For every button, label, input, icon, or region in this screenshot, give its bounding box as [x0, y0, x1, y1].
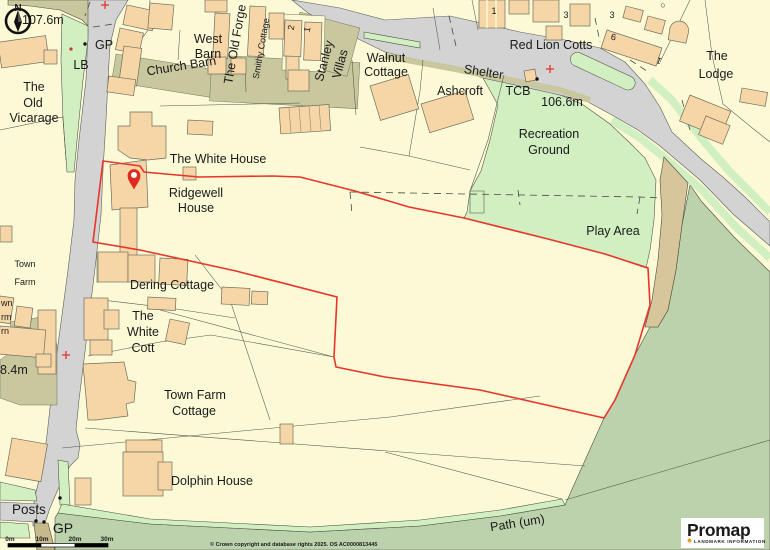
svg-text:Town Farm: Town Farm: [164, 388, 226, 402]
svg-text:N: N: [14, 3, 21, 14]
svg-text:TCB: TCB: [506, 84, 531, 98]
svg-text:3: 3: [609, 10, 614, 20]
svg-text:© Crown copyright and database: © Crown copyright and database rights 20…: [210, 541, 377, 548]
svg-text:Ridgewell: Ridgewell: [169, 186, 223, 200]
svg-text:Dolphin House: Dolphin House: [171, 474, 253, 488]
svg-text:30m: 30m: [100, 536, 113, 543]
svg-text:White: White: [127, 325, 159, 339]
svg-text:The White House: The White House: [170, 152, 267, 166]
svg-text:Dering Cottage: Dering Cottage: [130, 278, 214, 292]
svg-text:Lodge: Lodge: [699, 67, 734, 81]
svg-text:GP: GP: [53, 520, 73, 536]
svg-text:Posts: Posts: [12, 502, 46, 517]
svg-text:3: 3: [563, 10, 568, 20]
svg-text:106.6m: 106.6m: [541, 95, 583, 109]
svg-text:1: 1: [491, 6, 496, 16]
svg-text:The: The: [132, 309, 154, 323]
svg-text:House: House: [178, 201, 214, 215]
svg-text:Recreation: Recreation: [519, 127, 579, 141]
svg-text:Cottage: Cottage: [172, 404, 216, 418]
svg-text:Cottage: Cottage: [364, 65, 408, 79]
svg-text:8.4m: 8.4m: [0, 363, 28, 377]
svg-text:Cott: Cott: [132, 341, 155, 355]
svg-text:LANDMARK INFORMATION: LANDMARK INFORMATION: [694, 539, 766, 544]
svg-text:The: The: [706, 49, 728, 63]
svg-text:20m: 20m: [68, 536, 81, 543]
svg-text:Play Area: Play Area: [586, 224, 640, 238]
svg-text:West: West: [194, 32, 223, 46]
svg-text:rn: rn: [1, 326, 9, 336]
svg-text:rm: rm: [1, 312, 12, 322]
svg-text:Walnut: Walnut: [367, 51, 406, 65]
svg-text:Ground: Ground: [528, 143, 570, 157]
svg-text:The: The: [23, 80, 45, 94]
svg-text:○: ○: [660, 0, 665, 10]
svg-text:Town: Town: [14, 259, 35, 269]
svg-text:Old: Old: [23, 96, 43, 110]
svg-text:Ashcroft: Ashcroft: [437, 84, 483, 98]
svg-text:10m: 10m: [35, 536, 48, 543]
svg-text:Red Lion Cotts: Red Lion Cotts: [510, 38, 593, 52]
svg-text:Vicarage: Vicarage: [9, 111, 58, 125]
svg-text:Farm: Farm: [15, 277, 36, 287]
svg-text:Promap: Promap: [687, 520, 750, 540]
svg-text:0m: 0m: [5, 536, 15, 543]
svg-text:wn: wn: [0, 298, 13, 308]
svg-text:GP: GP: [95, 38, 113, 52]
svg-text:LB: LB: [73, 58, 88, 72]
